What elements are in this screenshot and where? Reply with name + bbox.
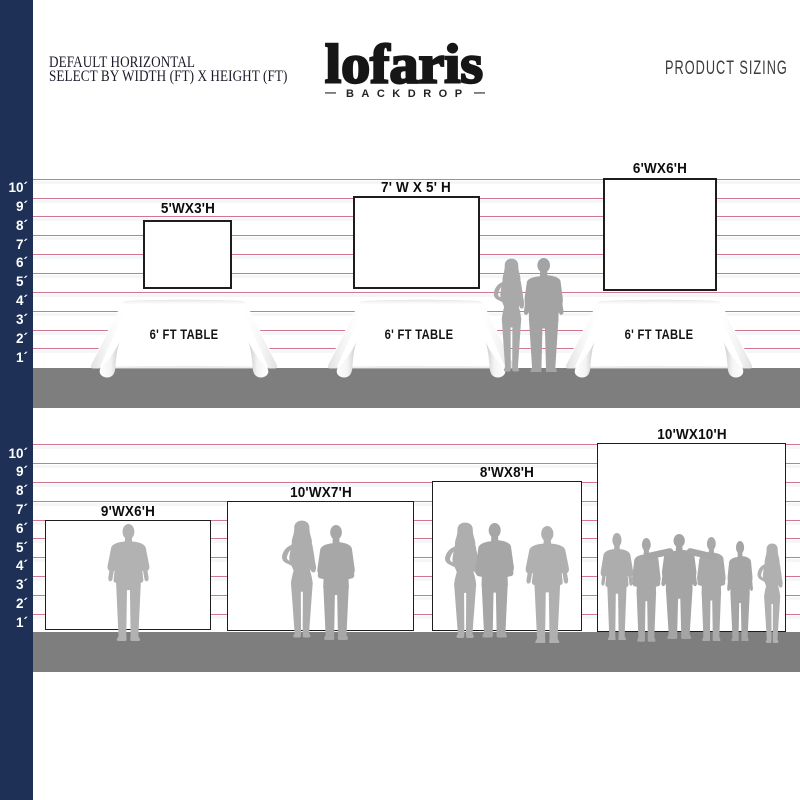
svg-text:lofaris: lofaris	[325, 36, 483, 88]
